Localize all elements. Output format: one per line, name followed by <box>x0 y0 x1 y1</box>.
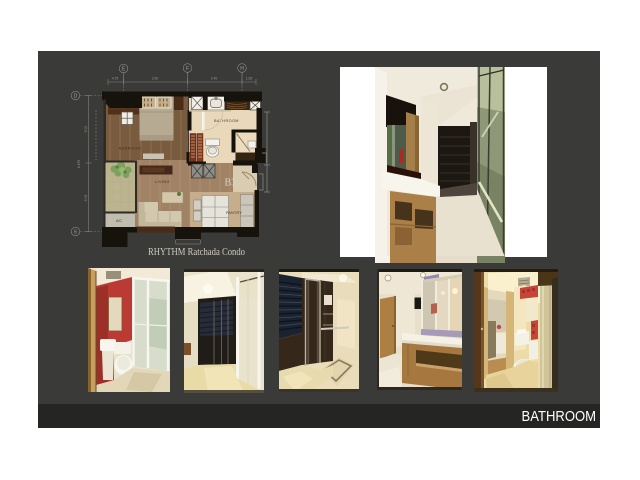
svg-text:D: D <box>74 94 78 100</box>
svg-text:4.75: 4.75 <box>112 77 119 81</box>
svg-text:BATHROOM: BATHROOM <box>214 119 239 123</box>
svg-text:B3: B3 <box>225 178 237 189</box>
svg-text:6: 6 <box>74 230 77 236</box>
svg-text:LIVING: LIVING <box>155 180 170 184</box>
svg-text:1.05: 1.05 <box>246 77 253 81</box>
svg-text:A/C: A/C <box>116 219 122 223</box>
svg-text:PANTRY: PANTRY <box>226 211 242 215</box>
svg-text:H: H <box>240 66 244 72</box>
svg-text:RHYTHM Ratchada Condo: RHYTHM Ratchada Condo <box>148 247 245 258</box>
svg-text:BEDROOM: BEDROOM <box>119 147 141 151</box>
svg-text:5.05: 5.05 <box>84 195 88 202</box>
svg-text:E: E <box>122 67 126 73</box>
svg-text:5.00: 5.00 <box>84 126 88 133</box>
svg-text:6.475: 6.475 <box>77 160 81 169</box>
svg-text:2.40: 2.40 <box>211 77 218 81</box>
svg-text:F: F <box>186 66 189 72</box>
svg-text:2.90: 2.90 <box>152 77 159 81</box>
